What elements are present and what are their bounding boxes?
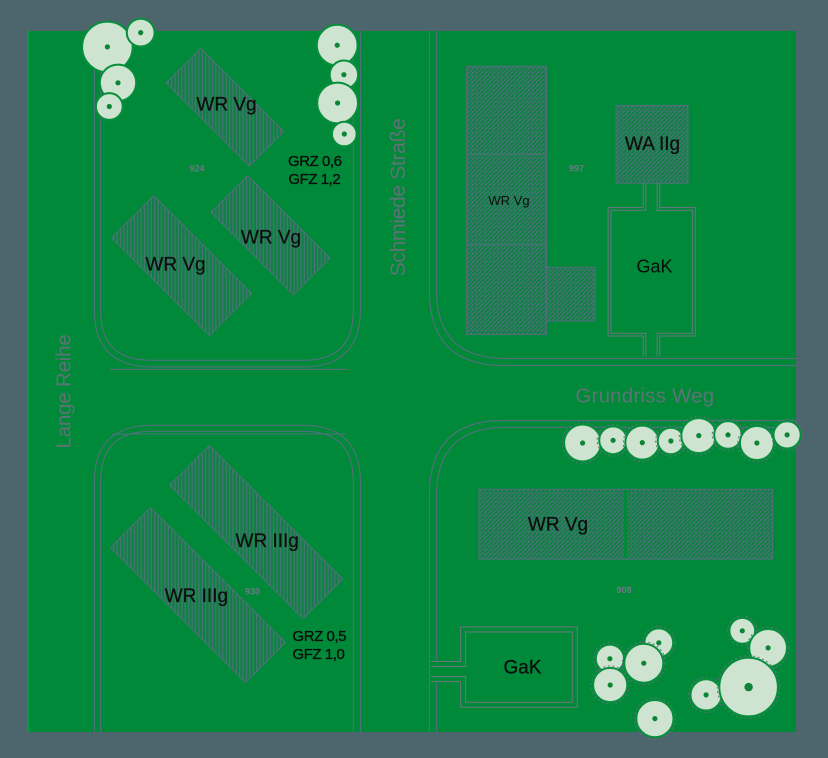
svg-text:Lange Reihe: Lange Reihe <box>53 334 76 448</box>
svg-text:GFZ 1,0: GFZ 1,0 <box>293 646 345 663</box>
svg-text:Schmiede Straße: Schmiede Straße <box>386 119 410 277</box>
svg-text:WR IIIg: WR IIIg <box>236 531 299 552</box>
svg-text:WR Vg: WR Vg <box>488 193 529 208</box>
svg-text:Grundriss Weg: Grundriss Weg <box>575 385 714 408</box>
svg-text:WR IIIg: WR IIIg <box>165 586 228 607</box>
svg-text:997: 997 <box>569 164 584 174</box>
svg-text:WR Vg: WR Vg <box>528 515 588 536</box>
svg-text:GaK: GaK <box>503 658 541 679</box>
svg-text:908: 908 <box>616 585 631 595</box>
svg-text:930: 930 <box>245 587 260 597</box>
svg-text:GaK: GaK <box>636 257 672 277</box>
svg-text:GFZ 1,2: GFZ 1,2 <box>288 171 340 188</box>
svg-text:GRZ 0,6: GRZ 0,6 <box>288 153 342 170</box>
svg-text:924: 924 <box>189 164 204 174</box>
svg-text:WR Vg: WR Vg <box>196 95 256 116</box>
svg-text:WR Vg: WR Vg <box>145 255 205 276</box>
svg-text:GRZ 0,5: GRZ 0,5 <box>293 628 347 645</box>
svg-text:WA IIg: WA IIg <box>625 134 680 155</box>
svg-text:WR Vg: WR Vg <box>241 228 301 249</box>
